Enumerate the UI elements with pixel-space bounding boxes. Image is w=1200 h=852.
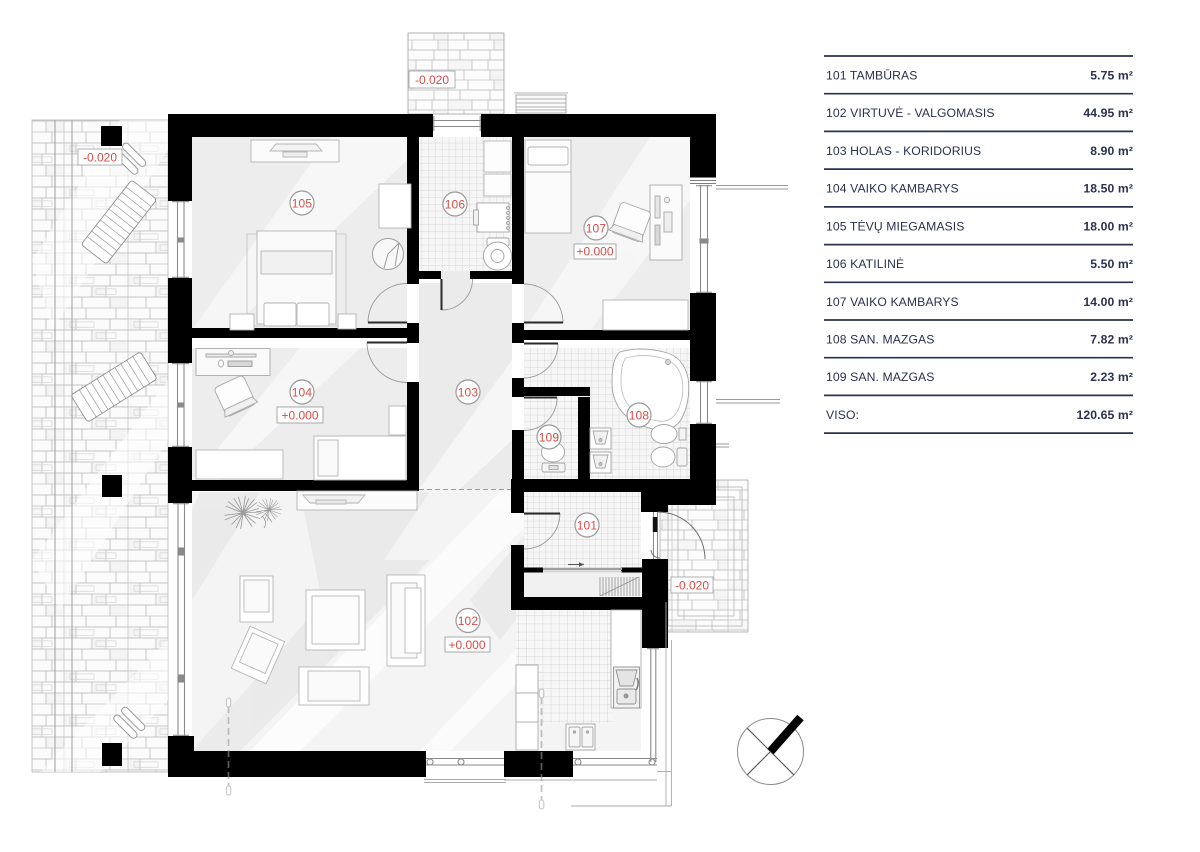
svg-text:105 TĖVŲ MIEGAMASIS: 105 TĖVŲ MIEGAMASIS xyxy=(826,219,965,233)
svg-text:7.82 m²: 7.82 m² xyxy=(1090,333,1133,347)
svg-text:+0.000: +0.000 xyxy=(281,409,318,423)
svg-text:104 VAIKO KAMBARYS: 104 VAIKO KAMBARYS xyxy=(826,182,959,196)
svg-text:-0.020: -0.020 xyxy=(83,151,117,165)
svg-text:104: 104 xyxy=(292,385,313,399)
svg-text:103: 103 xyxy=(458,385,479,399)
svg-text:102 VIRTUVĖ - VALGOMASIS: 102 VIRTUVĖ - VALGOMASIS xyxy=(826,106,995,120)
svg-text:106: 106 xyxy=(445,197,466,211)
svg-text:107 VAIKO KAMBARYS: 107 VAIKO KAMBARYS xyxy=(826,295,959,309)
svg-text:105: 105 xyxy=(292,196,313,210)
svg-text:+0.000: +0.000 xyxy=(448,638,485,652)
svg-text:107: 107 xyxy=(586,221,607,235)
svg-text:14.00 m²: 14.00 m² xyxy=(1083,295,1133,309)
svg-text:+0.000: +0.000 xyxy=(576,245,613,259)
svg-text:101: 101 xyxy=(577,518,598,532)
svg-text:5.75 m²: 5.75 m² xyxy=(1090,69,1133,83)
svg-text:109: 109 xyxy=(539,430,560,444)
svg-text:8.90 m²: 8.90 m² xyxy=(1090,144,1133,158)
svg-text:108: 108 xyxy=(629,408,650,422)
svg-text:106 KATILINĖ: 106 KATILINĖ xyxy=(826,257,904,271)
svg-text:-0.020: -0.020 xyxy=(675,579,709,593)
svg-text:101 TAMBŪRAS: 101 TAMBŪRAS xyxy=(826,69,918,83)
svg-text:18.00 m²: 18.00 m² xyxy=(1083,219,1133,233)
svg-text:5.50 m²: 5.50 m² xyxy=(1090,257,1133,271)
svg-text:2.23 m²: 2.23 m² xyxy=(1090,370,1133,384)
svg-text:VISO:: VISO: xyxy=(826,408,859,422)
svg-text:109 SAN. MAZGAS: 109 SAN. MAZGAS xyxy=(826,370,935,384)
svg-text:102: 102 xyxy=(458,614,479,628)
svg-text:120.65 m²: 120.65 m² xyxy=(1077,408,1133,422)
svg-text:44.95 m²: 44.95 m² xyxy=(1083,106,1133,120)
svg-text:108 SAN. MAZGAS: 108 SAN. MAZGAS xyxy=(826,333,935,347)
svg-text:103 HOLAS - KORIDORIUS: 103 HOLAS - KORIDORIUS xyxy=(826,144,981,158)
svg-text:18.50 m²: 18.50 m² xyxy=(1083,182,1133,196)
svg-text:-0.020: -0.020 xyxy=(415,73,449,87)
